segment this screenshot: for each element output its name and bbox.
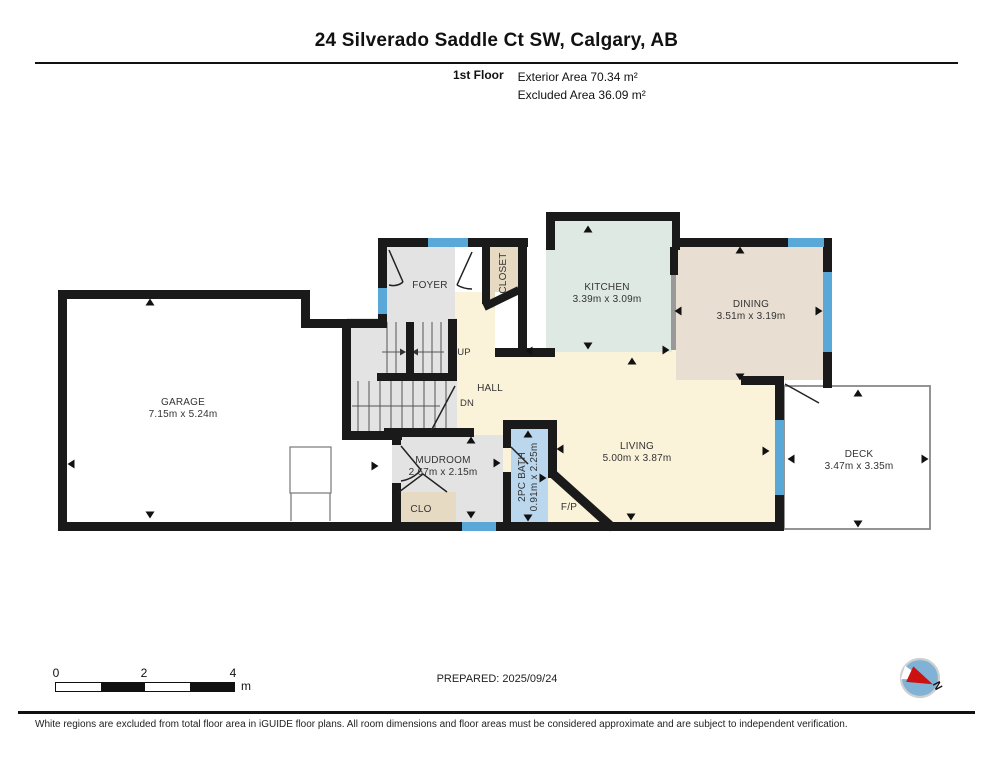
label-stairs-up: UP: [457, 347, 471, 359]
garage-steps: [290, 447, 331, 493]
label-deck: DECK3.47m x 3.35m: [825, 449, 894, 473]
label-stairs-down: DN: [460, 398, 474, 410]
label-dining: DINING3.51m x 3.19m: [717, 299, 786, 323]
floorplan-page: 24 Silverado Saddle Ct SW, Calgary, AB 1…: [0, 0, 993, 768]
scale-tick-0: 0: [53, 666, 60, 680]
kitchen-dining-divider: [671, 275, 676, 350]
label-bath: 2PC BATH0.91m x 2.25m: [517, 443, 541, 512]
scale-unit: m: [241, 679, 251, 693]
label-fireplace: F/P: [561, 502, 577, 514]
label-living: LIVING5.00m x 3.87m: [603, 441, 672, 465]
scale-tick-2: 2: [141, 666, 148, 680]
scale-bar: [55, 682, 235, 692]
label-hall: HALL: [477, 383, 503, 395]
label-closet: CLOSET: [498, 252, 510, 293]
footer-divider: [18, 711, 975, 714]
label-mudroom: MUDROOM2.67m x 2.15m: [409, 455, 478, 479]
prepared-date: PREPARED: 2025/09/24: [437, 673, 558, 685]
label-kitchen: KITCHEN3.39m x 3.09m: [573, 282, 642, 306]
scale-tick-4: 4: [230, 666, 237, 680]
label-garage: GARAGE7.15m x 5.24m: [149, 397, 218, 421]
label-foyer: FOYER: [412, 280, 447, 292]
label-clo: CLO: [410, 504, 431, 516]
footer-disclaimer: White regions are excluded from total fl…: [35, 719, 848, 730]
